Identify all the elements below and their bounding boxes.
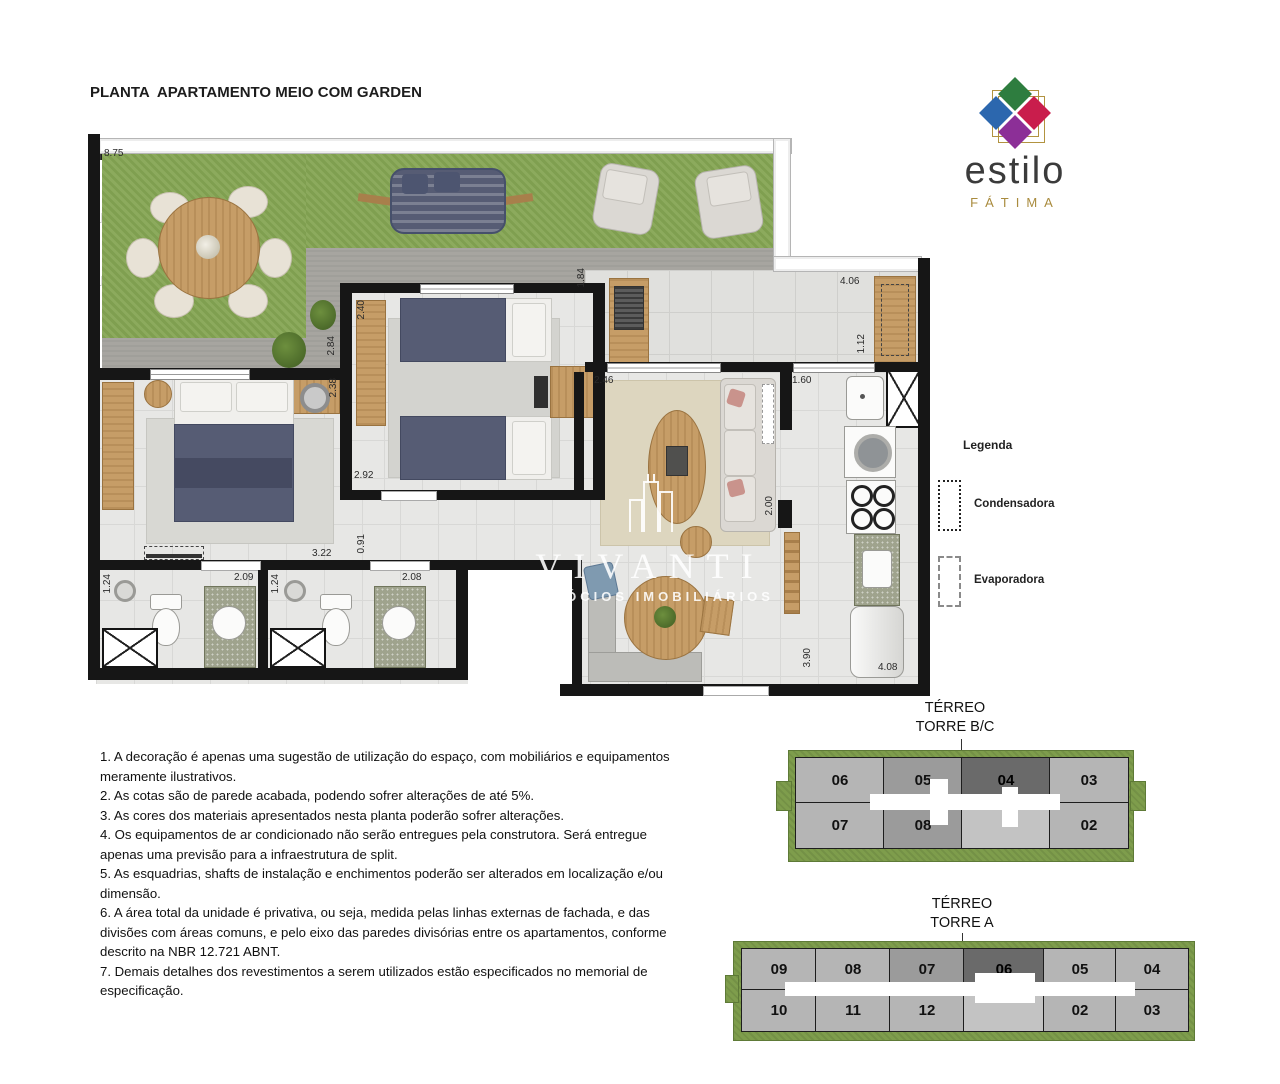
keyplan-torre-a: TÉRREO TORRE A 09 08 07 06 05 04 10 11 1…: [725, 893, 1200, 1068]
notes-block: 1. A decoração é apenas uma sugestão de …: [100, 747, 678, 1001]
note-item: 3. As cores dos materiais apresentados n…: [100, 806, 678, 826]
twin-bed-blanket: [400, 298, 506, 362]
exterior-notch: [468, 570, 572, 684]
evaporator-dashed-outline: [762, 384, 774, 444]
unit-cell: 02: [1049, 802, 1129, 849]
bed-pillow: [236, 382, 288, 412]
dim-label: 0.91: [356, 534, 367, 553]
garden-wall-entry: [773, 256, 922, 272]
laundry-sink: [846, 376, 884, 420]
note-item: 2. As cotas são de parede acabada, poden…: [100, 786, 678, 806]
burner-icon: [873, 485, 895, 507]
dim-label: 4.06: [840, 276, 859, 287]
keyplan-title-line: TÉRREO: [867, 895, 1057, 914]
dim-label: 1.24: [102, 574, 113, 593]
pouf: [680, 526, 712, 558]
garden-wall-top: [98, 138, 792, 154]
burner-icon: [851, 485, 873, 507]
dim-label: 4.08: [878, 662, 897, 673]
bed-throw: [174, 458, 292, 488]
note-item: 4. Os equipamentos de ar condicionado nã…: [100, 825, 678, 864]
garden-paving: [306, 248, 773, 272]
legend-label: Condensadora: [974, 498, 1055, 510]
keyplan-title-line: TORRE B/C: [865, 718, 1045, 737]
washer-drum-icon: [854, 434, 892, 472]
shaft-box: [102, 628, 158, 668]
dining-bench: [588, 652, 702, 682]
hammock-pillow: [434, 172, 460, 192]
table-centerpiece: [196, 235, 220, 259]
tower-green-tab: [1130, 781, 1146, 811]
floor-plan: 8.75 2.40 2.84 2.38 2.92 0.91 3.22 2.09 …: [88, 128, 933, 703]
table-plant: [654, 606, 676, 628]
tower-green-tab: [776, 781, 792, 811]
wall: [780, 372, 792, 430]
bed-pillow: [512, 303, 546, 357]
mirror-icon: [300, 383, 330, 413]
shrub: [272, 332, 306, 368]
nightstand: [144, 380, 172, 408]
wall: [593, 283, 605, 500]
condenser-symbol: [938, 480, 961, 531]
wall: [340, 490, 605, 500]
wall: [88, 668, 468, 680]
dim-label: 1.12: [856, 334, 867, 353]
brand-subname: FÁTIMA: [940, 195, 1090, 210]
tower-green-tab: [725, 975, 739, 1003]
window: [793, 363, 875, 373]
condenser-dashed-outline: [881, 284, 909, 356]
note-item: 1. A decoração é apenas uma sugestão de …: [100, 747, 678, 786]
dim-label: 2.92: [354, 470, 373, 481]
bed-pillow: [180, 382, 232, 412]
shrub: [310, 300, 336, 330]
legend-row: Evaporadora: [938, 556, 1108, 616]
pinwheel-logo-icon: [982, 80, 1048, 146]
dim-label: 1.60: [792, 375, 811, 386]
dim-label: 2.46: [594, 375, 613, 386]
dim-label: 2.00: [764, 496, 775, 515]
ladder-shelf: [784, 532, 800, 614]
bathroom-mirror-icon: [284, 580, 306, 602]
note-item: 7. Demais detalhes dos revestimentos a s…: [100, 962, 678, 1001]
dim-label: 1.84: [576, 268, 587, 287]
wall: [340, 283, 352, 500]
barbecue-grill: [614, 286, 644, 330]
window: [607, 363, 721, 373]
door-sill: [370, 561, 430, 571]
shaft-box: [270, 628, 326, 668]
window: [150, 369, 250, 380]
wall: [918, 258, 930, 696]
hammock: [358, 166, 533, 236]
table-tray: [666, 446, 688, 476]
twin-bed-blanket: [400, 416, 506, 480]
garden-chair: [126, 238, 160, 278]
keyplan-title-line: TÉRREO: [865, 699, 1045, 718]
plan-title: PLANTA APARTAMENTO MEIO COM GARDEN: [90, 82, 570, 103]
dim-label: 2.08: [402, 572, 421, 583]
note-item: 6. A área total da unidade é privativa, …: [100, 903, 678, 962]
bathroom-mirror-icon: [114, 580, 136, 602]
keyplan-title: TÉRREO TORRE A: [867, 895, 1057, 933]
window: [420, 284, 514, 294]
note-item: 5. As esquadrias, shafts de instalação e…: [100, 864, 678, 903]
door-sill: [381, 491, 437, 501]
corridor: [930, 779, 948, 825]
dim-label: 1.24: [270, 574, 281, 593]
dining-chair: [700, 596, 735, 636]
developer-logo: estilo FÁTIMA: [940, 80, 1090, 210]
bedroom1-wardrobe: [102, 382, 134, 510]
wall: [258, 570, 268, 672]
dim-label: 8.75: [104, 148, 123, 159]
legend-title: Legenda: [963, 438, 1108, 452]
tv-icon: [534, 376, 548, 408]
garden-chair: [258, 238, 292, 278]
evaporator-symbol: [938, 556, 961, 607]
burner-icon: [851, 508, 873, 530]
wall: [456, 560, 468, 680]
page: { "header": { "line1": "PLANTA APARTAMEN…: [0, 0, 1280, 1084]
hammock-pillow: [402, 174, 428, 194]
corridor: [975, 973, 1035, 1003]
door-sill: [703, 686, 769, 696]
dim-label: 2.84: [326, 336, 337, 355]
wall: [778, 500, 792, 528]
garden-wall-right: [773, 138, 791, 264]
corridor: [785, 982, 1135, 996]
door-leaf: [146, 554, 202, 558]
bed-pillow: [512, 421, 546, 475]
burner-icon: [873, 508, 895, 530]
kitchen-sink: [862, 550, 892, 588]
dim-label: 2.09: [234, 572, 253, 583]
shaft-box: [886, 368, 922, 428]
dim-label: 3.90: [802, 648, 813, 667]
sofa-cushion: [724, 430, 756, 476]
bathroom-sink: [212, 606, 246, 640]
outer-wall-left: [88, 134, 100, 680]
wall: [574, 372, 584, 492]
keyplan-title-line: TORRE A: [867, 914, 1057, 933]
dim-label: 2.38: [328, 378, 339, 397]
corridor: [1002, 787, 1018, 827]
keyplan-torre-bc: TÉRREO TORRE B/C 06 05 04 03 07 08 02: [770, 695, 1140, 880]
toilet-icon: [322, 608, 350, 646]
brand-name: estilo: [940, 150, 1090, 193]
legend-row: Condensadora: [938, 480, 1108, 540]
keyplan-title: TÉRREO TORRE B/C: [865, 699, 1045, 737]
unit-cell: 03: [1049, 757, 1129, 804]
wall: [572, 570, 582, 684]
legend: Legenda Condensadora Evaporadora: [938, 438, 1108, 616]
bedroom2-desk: [550, 366, 596, 418]
dim-label: 3.22: [312, 548, 331, 559]
bathroom-sink: [382, 606, 416, 640]
legend-label: Evaporadora: [974, 574, 1044, 586]
corridor: [870, 794, 1060, 810]
laundry-drain: [860, 394, 865, 399]
door-sill: [201, 561, 261, 571]
dim-label: 2.40: [356, 300, 367, 319]
